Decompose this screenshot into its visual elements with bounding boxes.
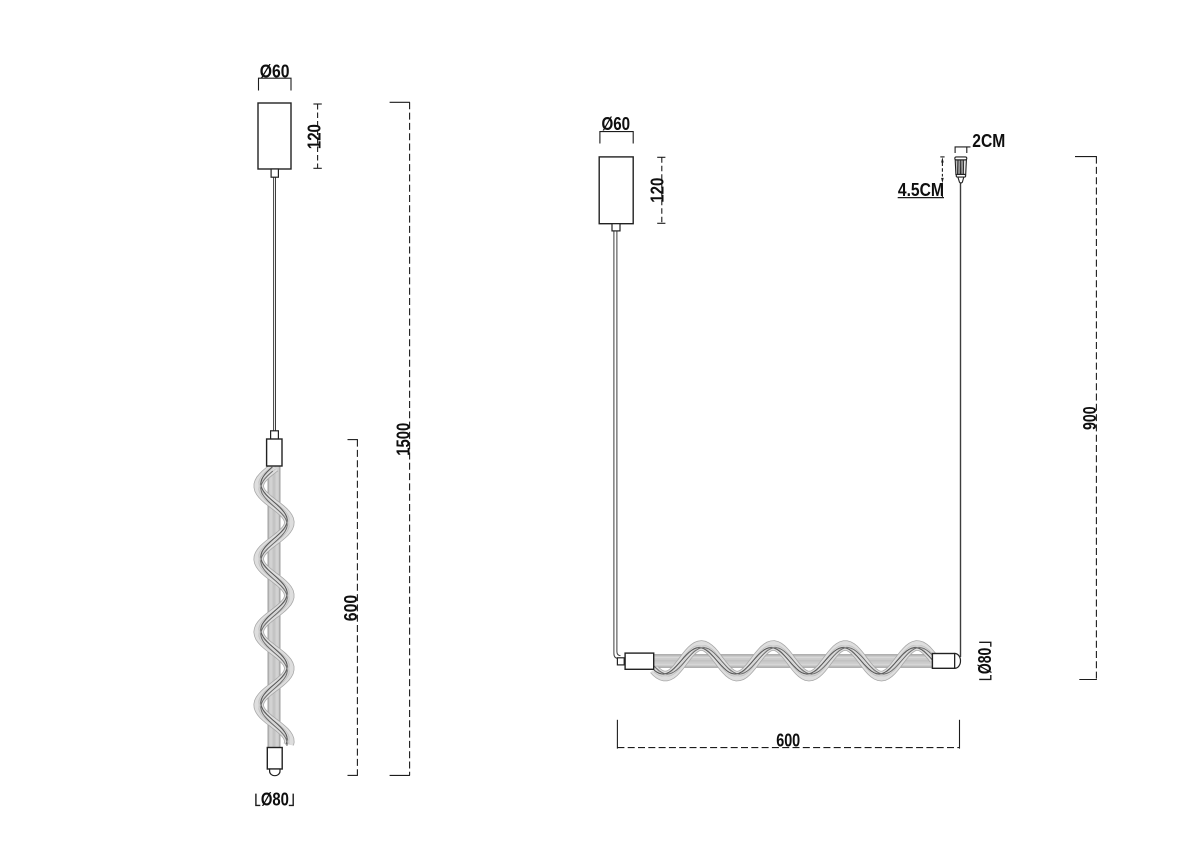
svg-text:4.5CM: 4.5CM (898, 179, 944, 200)
svg-text:Ø80: Ø80 (974, 648, 995, 674)
svg-text:1500: 1500 (392, 423, 413, 456)
svg-text:600: 600 (340, 595, 361, 621)
svg-text:Ø60: Ø60 (260, 60, 290, 81)
svg-text:Ø60: Ø60 (602, 113, 631, 134)
svg-text:900: 900 (1079, 406, 1100, 430)
svg-text:600: 600 (776, 729, 800, 750)
svg-text:Ø80: Ø80 (261, 789, 289, 810)
svg-text:120: 120 (304, 124, 325, 149)
svg-text:120: 120 (647, 178, 668, 203)
svg-text:2CM: 2CM (972, 130, 1005, 151)
